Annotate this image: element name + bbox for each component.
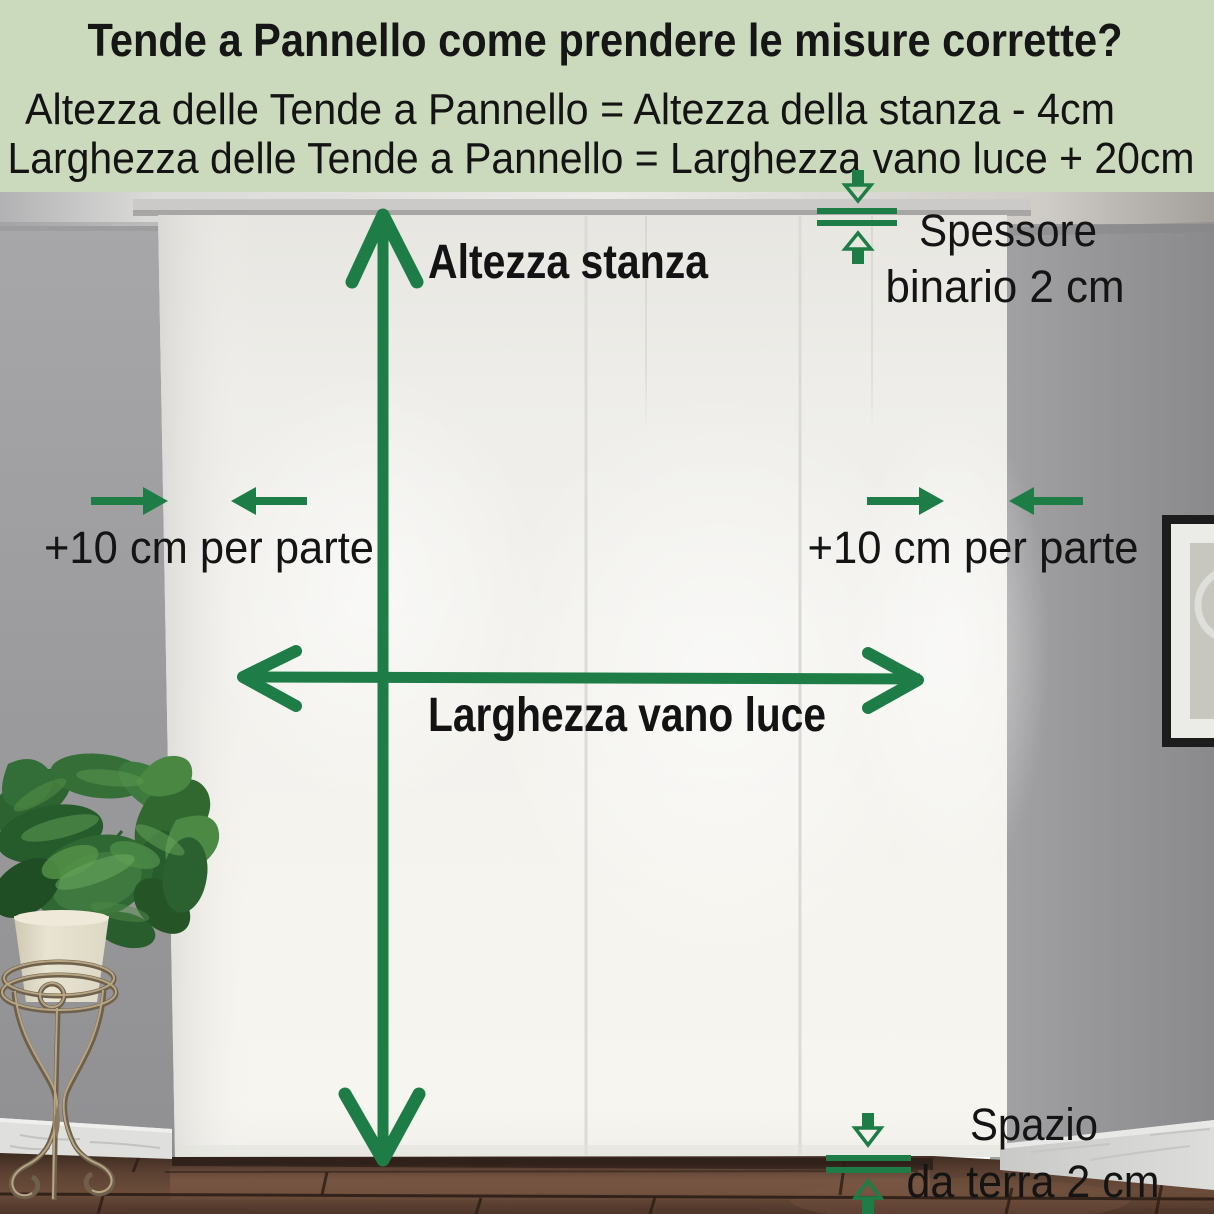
svg-text:+10 cm per parte: +10 cm per parte — [808, 522, 1139, 573]
svg-text:+10 cm per parte: +10 cm per parte — [44, 522, 374, 573]
svg-text:Spessore: Spessore — [919, 205, 1097, 256]
svg-text:Altezza delle Tende a Pannello: Altezza delle Tende a Pannello = Altezza… — [25, 85, 1115, 134]
svg-text:Tende a Pannello come prendere: Tende a Pannello come prendere le misure… — [88, 14, 1123, 66]
svg-text:Larghezza delle Tende a Pannel: Larghezza delle Tende a Pannello = Largh… — [8, 134, 1195, 183]
svg-text:binario 2 cm: binario 2 cm — [886, 261, 1125, 312]
svg-text:Altezza stanza: Altezza stanza — [428, 236, 708, 289]
svg-text:Larghezza vano luce: Larghezza vano luce — [428, 689, 826, 742]
svg-text:Spazio: Spazio — [970, 1099, 1098, 1150]
svg-text:da terra 2 cm: da terra 2 cm — [907, 1156, 1160, 1207]
